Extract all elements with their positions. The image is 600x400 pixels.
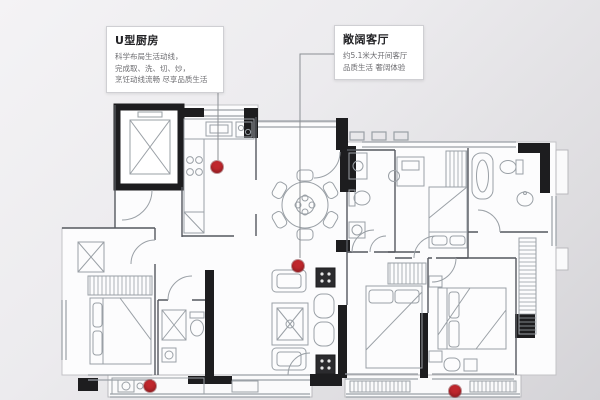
callout-living-title: 敞阔客厅 [343,31,415,47]
callout-kitchen-line: 烹饪动线流畅 尽享品质生活 [115,74,215,86]
marker-dot-kitchen [211,161,223,173]
callout-living: 敞阔客厅 约5.1米大开间客厅 品质生活 奢阔体验 [334,25,424,80]
callout-kitchen-line: 科学布局生活动线， [115,51,215,63]
wardrobe-corridor [519,238,536,334]
callout-kitchen-line: 完成取、洗、切、炒， [115,63,215,75]
callout-living-line: 约5.1米大开间客厅 [343,50,415,62]
callout-kitchen-title: U型厨房 [115,32,215,48]
callout-living-line: 品质生活 奢阔体验 [343,62,415,74]
marker-dot-living-room [292,260,304,272]
marker-dot-right-balcony [449,385,461,397]
marker-dot-left-balcony [144,380,156,392]
floorplan-canvas: U型厨房 科学布局生活动线， 完成取、洗、切、炒， 烹饪动线流畅 尽享品质生活 … [0,0,600,400]
floor-plan-drawing [0,0,600,400]
callout-kitchen: U型厨房 科学布局生活动线， 完成取、洗、切、炒， 烹饪动线流畅 尽享品质生活 [106,26,224,93]
